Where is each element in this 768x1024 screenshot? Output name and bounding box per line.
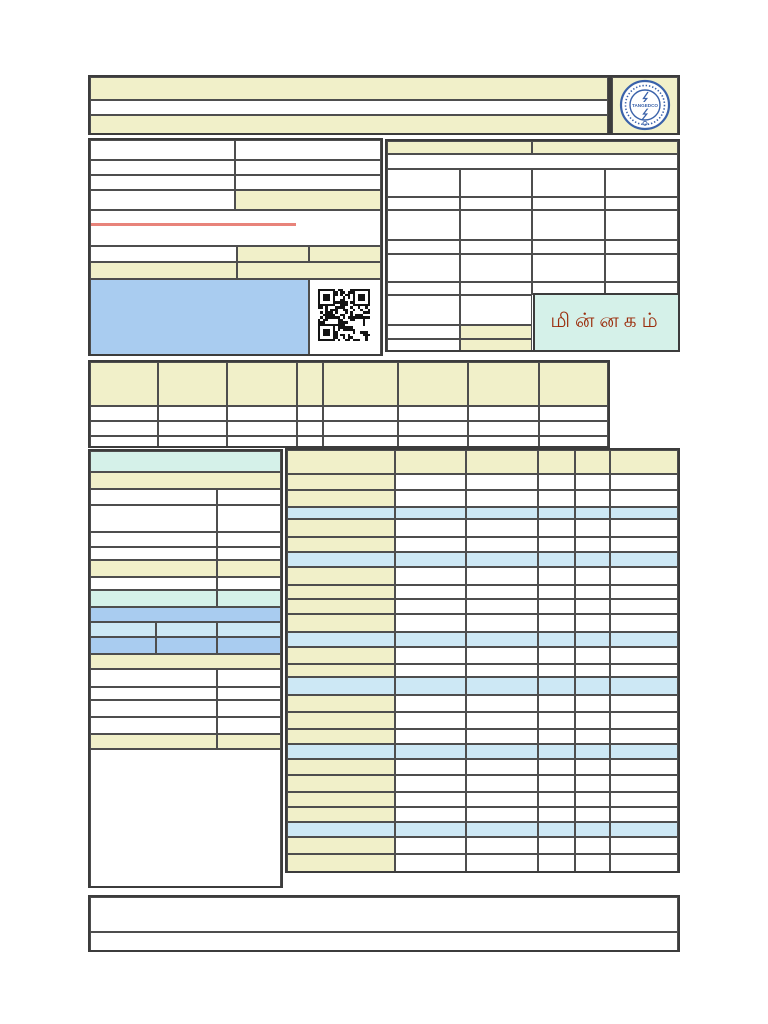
- grid-cell: [217, 622, 281, 637]
- grid-cell: [398, 421, 468, 436]
- bill-document-page: மின்னகம் TANGEDCO: [0, 0, 768, 1024]
- grid-cell: [575, 552, 610, 567]
- grid-row: [387, 254, 678, 282]
- grid-cell: [387, 295, 460, 325]
- grid-row: [90, 210, 381, 246]
- grid-cell: [287, 664, 395, 677]
- grid-cell: [90, 654, 281, 669]
- grid-row: [387, 154, 678, 169]
- grid-cell: [217, 505, 281, 532]
- grid-cell: [575, 537, 610, 552]
- grid-cell: [287, 519, 395, 537]
- logo-text: TANGEDCO: [632, 103, 658, 108]
- grid-cell: [538, 474, 575, 490]
- grid-cell: [466, 474, 538, 490]
- grid-cell: [460, 197, 532, 210]
- grid-cell: [287, 854, 395, 873]
- grid-row: [90, 451, 281, 472]
- grid-row: [90, 489, 281, 505]
- grid-cell: [610, 474, 678, 490]
- grid-cell: [538, 614, 575, 632]
- grid-row: [387, 169, 678, 197]
- grid-cell: [90, 421, 158, 436]
- grid-cell: [217, 637, 281, 654]
- grid-cell: [466, 712, 538, 729]
- grid-cell: [575, 490, 610, 507]
- grid-cell: [466, 632, 538, 647]
- grid-cell: [217, 700, 281, 717]
- grid-row: [287, 632, 678, 647]
- grid-cell: [610, 775, 678, 792]
- grid-cell: [605, 210, 678, 240]
- grid-cell: [575, 647, 610, 664]
- grid-cell: [90, 451, 281, 472]
- grid-cell: [90, 505, 217, 532]
- qr-code-icon: [318, 289, 370, 341]
- grid-cell: [610, 647, 678, 664]
- grid-row: [387, 210, 678, 240]
- grid-row: [90, 590, 281, 607]
- grid-cell: [235, 140, 381, 160]
- grid-cell: [287, 507, 395, 519]
- grid-cell: [575, 632, 610, 647]
- grid-cell: [227, 406, 297, 421]
- grid-cell: [538, 632, 575, 647]
- grid-cell: [575, 567, 610, 585]
- grid-cell: [287, 614, 395, 632]
- grid-row: [90, 436, 608, 448]
- grid-cell: [460, 339, 532, 352]
- grid-row: [90, 77, 608, 100]
- grid-cell: [466, 537, 538, 552]
- grid-cell: [398, 406, 468, 421]
- grid-cell: [395, 490, 466, 507]
- grid-cell: [323, 436, 397, 448]
- grid-cell: [575, 474, 610, 490]
- grid-row: [287, 537, 678, 552]
- grid-cell: [610, 759, 678, 775]
- grid-cell: [395, 507, 466, 519]
- grid-cell: [610, 822, 678, 837]
- grid-cell: [610, 677, 678, 695]
- grid-cell: [538, 744, 575, 759]
- grid-row: [287, 729, 678, 744]
- grid-cell: [217, 560, 281, 577]
- grid-cell: [297, 362, 323, 406]
- grid-cell: [538, 585, 575, 599]
- grid-cell: [575, 695, 610, 712]
- grid-cell: [468, 406, 538, 421]
- grid-cell: [158, 421, 226, 436]
- grid-cell: [287, 759, 395, 775]
- grid-cell: [539, 436, 608, 448]
- grid-row: [90, 175, 381, 190]
- grid-cell: [466, 647, 538, 664]
- grid-cell: [398, 362, 468, 406]
- grid-cell: [538, 599, 575, 614]
- grid-cell: [297, 406, 323, 421]
- grid-cell: [90, 590, 217, 607]
- grid-cell: [575, 744, 610, 759]
- grid-cell: [90, 700, 217, 717]
- grid-cell: [610, 837, 678, 854]
- grid-cell: [217, 669, 281, 687]
- grid-row: [387, 197, 678, 210]
- grid-row: [90, 406, 608, 421]
- grid-cell: [466, 677, 538, 695]
- grid-row: [90, 700, 281, 717]
- grid-cell: [90, 637, 156, 654]
- grid-cell: [395, 712, 466, 729]
- grid-cell: [237, 262, 381, 279]
- grid-cell: [468, 362, 538, 406]
- grid-cell: [532, 254, 605, 282]
- grid-cell: [395, 729, 466, 744]
- grid-row: [90, 932, 678, 952]
- grid-row: [90, 547, 281, 560]
- grid-cell: [466, 507, 538, 519]
- grid-row: [90, 100, 608, 115]
- grid-row: [387, 240, 678, 254]
- grid-cell: [605, 240, 678, 254]
- consumption-table: [88, 360, 610, 448]
- grid-cell: [610, 599, 678, 614]
- grid-cell: [217, 489, 281, 505]
- grid-cell: [90, 140, 235, 160]
- grid-cell: [90, 100, 608, 115]
- grid-cell: [575, 585, 610, 599]
- grid-cell: [287, 552, 395, 567]
- grid-cell: [217, 532, 281, 547]
- accent-underline: [91, 223, 296, 226]
- grid-cell: [466, 450, 538, 474]
- grid-row: [90, 654, 281, 669]
- grid-cell: [538, 490, 575, 507]
- grid-cell: [466, 599, 538, 614]
- grid-cell: [575, 854, 610, 873]
- grid-cell: [287, 474, 395, 490]
- grid-cell: [287, 677, 395, 695]
- grid-row: [90, 897, 678, 932]
- grid-row: [90, 687, 281, 700]
- grid-cell: [227, 362, 297, 406]
- grid-cell: [605, 254, 678, 282]
- grid-cell: [538, 837, 575, 854]
- grid-cell: [575, 507, 610, 519]
- grid-row: [287, 507, 678, 519]
- grid-cell: [395, 664, 466, 677]
- grid-row: [287, 822, 678, 837]
- grid-cell: [395, 585, 466, 599]
- grid-cell: [287, 599, 395, 614]
- grid-cell: [460, 282, 532, 295]
- grid-cell: [90, 532, 217, 547]
- grid-cell: [156, 637, 218, 654]
- grid-cell: [466, 585, 538, 599]
- grid-cell: [532, 197, 605, 210]
- grid-cell: [90, 489, 217, 505]
- grid-cell: [90, 687, 217, 700]
- grid-row: [90, 607, 281, 622]
- grid-cell: [235, 160, 381, 175]
- grid-cell: [90, 262, 237, 279]
- grid-cell: [297, 436, 323, 448]
- grid-cell: [287, 567, 395, 585]
- grid-cell: [395, 552, 466, 567]
- grid-row: [90, 637, 281, 654]
- grid-cell: [460, 325, 532, 339]
- grid-cell: [90, 577, 217, 590]
- grid-cell: [538, 537, 575, 552]
- grid-cell: [217, 577, 281, 590]
- grid-row: [287, 695, 678, 712]
- grid-cell: [539, 421, 608, 436]
- grid-cell: [575, 822, 610, 837]
- grid-cell: [610, 537, 678, 552]
- grid-cell: [460, 254, 532, 282]
- grid-cell: [466, 744, 538, 759]
- grid-cell: [287, 807, 395, 822]
- grid-cell: [395, 614, 466, 632]
- grid-cell: [395, 775, 466, 792]
- grid-cell: [610, 792, 678, 807]
- grid-cell: [575, 450, 610, 474]
- grid-cell: [323, 362, 397, 406]
- grid-cell: [466, 822, 538, 837]
- grid-cell: [610, 552, 678, 567]
- grid-cell: [90, 436, 158, 448]
- grid-cell: [395, 632, 466, 647]
- grid-cell: [538, 854, 575, 873]
- grid-cell: [235, 175, 381, 190]
- grid-row: [287, 664, 678, 677]
- grid-cell: [395, 567, 466, 585]
- grid-cell: [395, 537, 466, 552]
- grid-cell: [538, 450, 575, 474]
- grid-cell: [395, 695, 466, 712]
- grid-cell: [90, 279, 309, 356]
- grid-row: [287, 474, 678, 490]
- grid-cell: [323, 421, 397, 436]
- grid-row: [387, 141, 678, 154]
- grid-cell: [287, 647, 395, 664]
- grid-row: [90, 362, 608, 406]
- grid-cell: [538, 507, 575, 519]
- grid-cell: [287, 822, 395, 837]
- footer-rows: [88, 895, 680, 952]
- grid-row: [287, 677, 678, 695]
- grid-cell: [532, 210, 605, 240]
- grid-row: [90, 505, 281, 532]
- grid-row: [287, 490, 678, 507]
- grid-row: [287, 647, 678, 664]
- grid-row: [90, 749, 281, 888]
- grid-cell: [90, 115, 608, 135]
- grid-cell: [610, 519, 678, 537]
- grid-cell: [538, 647, 575, 664]
- grid-cell: [227, 421, 297, 436]
- grid-row: [287, 807, 678, 822]
- grid-cell: [387, 141, 532, 154]
- grid-cell: [466, 695, 538, 712]
- grid-cell: [460, 295, 532, 325]
- grid-cell: [466, 792, 538, 807]
- grid-cell: [90, 210, 381, 246]
- grid-cell: [466, 614, 538, 632]
- grid-cell: [466, 490, 538, 507]
- grid-cell: [575, 712, 610, 729]
- grid-cell: [538, 822, 575, 837]
- grid-cell: [605, 197, 678, 210]
- grid-cell: [538, 775, 575, 792]
- grid-cell: [237, 246, 309, 262]
- grid-cell: [610, 807, 678, 822]
- grid-cell: [387, 240, 460, 254]
- grid-cell: [532, 141, 678, 154]
- grid-cell: [532, 169, 605, 197]
- grid-cell: [538, 567, 575, 585]
- grid-cell: [460, 210, 532, 240]
- grid-cell: [287, 775, 395, 792]
- grid-cell: [575, 792, 610, 807]
- grid-cell: [395, 854, 466, 873]
- grid-cell: [395, 792, 466, 807]
- grid-cell: [610, 507, 678, 519]
- grid-cell: [387, 210, 460, 240]
- grid-cell: [395, 519, 466, 537]
- grid-cell: [158, 406, 226, 421]
- grid-cell: [610, 450, 678, 474]
- grid-cell: [217, 547, 281, 560]
- grid-cell: [395, 450, 466, 474]
- grid-cell: [90, 246, 237, 262]
- grid-cell: [387, 282, 460, 295]
- grid-cell: [466, 519, 538, 537]
- grid-cell: [610, 712, 678, 729]
- grid-cell: [387, 325, 460, 339]
- grid-cell: [158, 362, 226, 406]
- grid-row: [287, 854, 678, 873]
- header-rows: [88, 75, 610, 135]
- grid-cell: [287, 490, 395, 507]
- grid-cell: [538, 729, 575, 744]
- grid-cell: [297, 421, 323, 436]
- grid-cell: [538, 677, 575, 695]
- grid-cell: [217, 734, 281, 749]
- grid-cell: [610, 729, 678, 744]
- grid-cell: [460, 240, 532, 254]
- grid-cell: [466, 854, 538, 873]
- grid-row: [90, 717, 281, 734]
- grid-cell: [610, 744, 678, 759]
- grid-row: [287, 585, 678, 599]
- grid-cell: [90, 362, 158, 406]
- grid-cell: [90, 77, 608, 100]
- grid-cell: [575, 759, 610, 775]
- tangedco-seal-icon: TANGEDCO: [619, 79, 671, 131]
- grid-cell: [538, 712, 575, 729]
- grid-row: [287, 759, 678, 775]
- grid-cell: [539, 406, 608, 421]
- grid-cell: [387, 197, 460, 210]
- grid-cell: [158, 436, 226, 448]
- grid-row: [90, 262, 381, 279]
- tangedco-logo-cell: TANGEDCO: [610, 75, 680, 135]
- grid-cell: [575, 599, 610, 614]
- grid-cell: [90, 734, 217, 749]
- grid-cell: [538, 807, 575, 822]
- grid-cell: [395, 599, 466, 614]
- grid-cell: [466, 837, 538, 854]
- grid-row: [287, 837, 678, 854]
- grid-cell: [90, 472, 281, 489]
- grid-cell: [387, 169, 460, 197]
- grid-cell: [395, 647, 466, 664]
- grid-cell: [468, 436, 538, 448]
- grid-row: [90, 421, 608, 436]
- grid-cell: [466, 664, 538, 677]
- grid-cell: [90, 717, 217, 734]
- reading-details-panel: [88, 449, 283, 888]
- grid-cell: [532, 240, 605, 254]
- grid-cell: [610, 490, 678, 507]
- grid-row: [90, 669, 281, 687]
- grid-cell: [395, 474, 466, 490]
- grid-row: [90, 622, 281, 637]
- grid-cell: [90, 160, 235, 175]
- grid-cell: [323, 406, 397, 421]
- grid-cell: [90, 175, 235, 190]
- grid-cell: [287, 837, 395, 854]
- grid-cell: [610, 695, 678, 712]
- grid-cell: [538, 695, 575, 712]
- grid-cell: [395, 759, 466, 775]
- grid-cell: [90, 190, 235, 210]
- grid-cell: [90, 669, 217, 687]
- grid-cell: [235, 190, 381, 210]
- grid-cell: [575, 729, 610, 744]
- grid-row: [287, 519, 678, 537]
- grid-cell: [466, 807, 538, 822]
- grid-cell: [610, 567, 678, 585]
- grid-row: [90, 115, 608, 135]
- grid-cell: [156, 622, 218, 637]
- grid-cell: [575, 775, 610, 792]
- grid-row: [90, 160, 381, 175]
- grid-cell: [610, 854, 678, 873]
- grid-cell: [395, 837, 466, 854]
- grid-cell: [287, 585, 395, 599]
- grid-cell: [287, 632, 395, 647]
- grid-cell: [538, 519, 575, 537]
- grid-row: [90, 246, 381, 262]
- grid-row: [287, 712, 678, 729]
- grid-cell: [395, 744, 466, 759]
- grid-cell: [468, 421, 538, 436]
- grid-cell: [217, 590, 281, 607]
- grid-row: [287, 599, 678, 614]
- grid-row: [90, 734, 281, 749]
- grid-cell: [90, 406, 158, 421]
- grid-cell: [395, 822, 466, 837]
- grid-cell: [466, 567, 538, 585]
- grid-cell: [466, 759, 538, 775]
- grid-cell: [395, 677, 466, 695]
- grid-row: [90, 472, 281, 489]
- grid-cell: [398, 436, 468, 448]
- grid-cell: [387, 339, 460, 352]
- grid-cell: [610, 632, 678, 647]
